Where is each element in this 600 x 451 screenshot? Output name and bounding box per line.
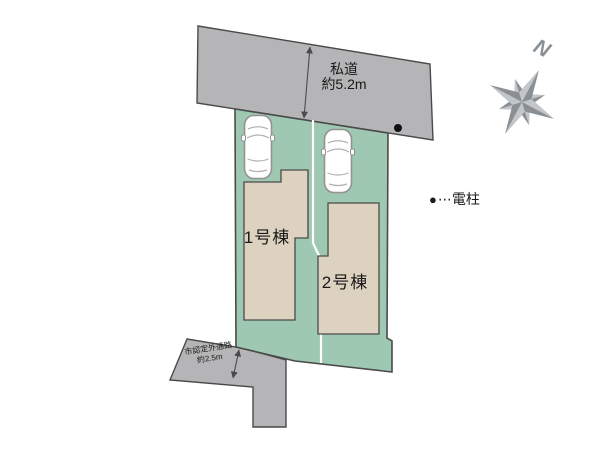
legend-utility-pole: ● ⋯電柱	[429, 189, 480, 209]
site-plan-drawing	[0, 0, 600, 451]
private-road-name: 私道	[308, 62, 380, 77]
car-icon	[242, 116, 275, 179]
private-road-width: 約5.2m	[308, 77, 380, 92]
site-plan: 私道 約5.2m 1号棟 2号棟 ● ⋯電柱 市認定外通路 約2.5m N	[0, 0, 600, 451]
pole-dot-icon: ●	[429, 192, 437, 207]
building-2-label: 2号棟	[318, 268, 372, 293]
utility-pole-dot	[394, 124, 402, 132]
compass-rose-icon	[473, 53, 570, 150]
legend-text: ⋯電柱	[438, 189, 480, 209]
private-road-label: 私道 約5.2m	[308, 62, 380, 92]
building-1-label: 1号棟	[240, 223, 294, 248]
car-icon	[322, 130, 355, 193]
